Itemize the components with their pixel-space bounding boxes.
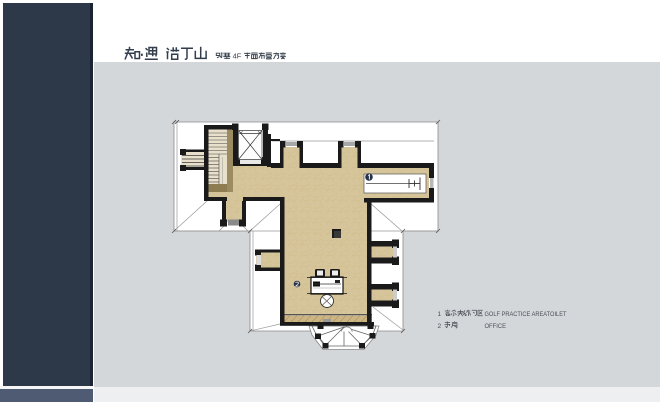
svg-text:OFFICE: OFFICE (485, 323, 507, 330)
svg-text:1: 1 (438, 311, 442, 318)
svg-text:2: 2 (438, 323, 442, 330)
svg-text:4F: 4F (233, 51, 242, 60)
svg-text:GOLF PRACTICE AREATOILET: GOLF PRACTICE AREATOILET (485, 311, 567, 318)
